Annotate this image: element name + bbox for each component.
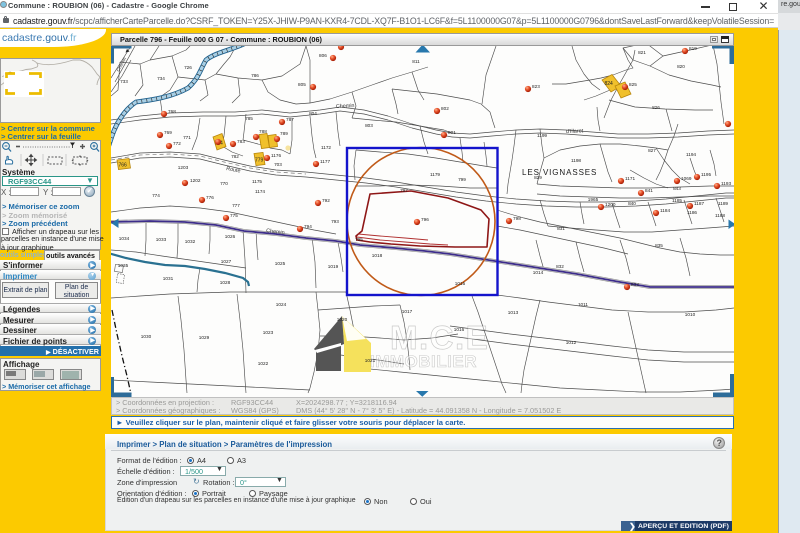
svg-text:1198: 1198 <box>571 158 581 163</box>
svg-text:820: 820 <box>677 64 685 69</box>
svg-text:1032: 1032 <box>185 239 196 244</box>
svg-text:1013: 1013 <box>508 310 519 315</box>
svg-text:1187: 1187 <box>694 201 704 206</box>
svg-text:1172: 1172 <box>321 145 331 150</box>
svg-text:783: 783 <box>237 139 245 144</box>
svg-text:1016: 1016 <box>454 327 465 332</box>
svg-text:1020: 1020 <box>337 317 348 322</box>
svg-text:1179: 1179 <box>430 172 440 177</box>
svg-text:782: 782 <box>231 154 239 159</box>
svg-text:843: 843 <box>673 186 681 191</box>
svg-text:M.C.E: M.C.E <box>390 319 489 356</box>
svg-text:1069: 1069 <box>681 176 692 181</box>
svg-text:703: 703 <box>274 162 282 167</box>
svg-text:831: 831 <box>557 226 565 231</box>
svg-text:LES VIGNASSES: LES VIGNASSES <box>522 168 597 177</box>
svg-text:1194: 1194 <box>686 152 696 157</box>
svg-text:826: 826 <box>652 105 660 110</box>
svg-text:786: 786 <box>251 73 259 78</box>
svg-text:794: 794 <box>304 224 312 229</box>
svg-text:1202: 1202 <box>190 178 201 183</box>
svg-text:819: 819 <box>689 46 697 51</box>
svg-text:1030: 1030 <box>141 334 152 339</box>
svg-text:1199: 1199 <box>537 133 547 138</box>
svg-text:1171: 1171 <box>625 176 635 181</box>
svg-text:1019: 1019 <box>328 264 339 269</box>
svg-text:797: 797 <box>400 188 408 193</box>
svg-text:1017: 1017 <box>402 309 413 314</box>
svg-text:775: 775 <box>230 213 238 218</box>
svg-text:787: 787 <box>286 117 294 122</box>
svg-text:785: 785 <box>245 116 253 121</box>
svg-text:1022: 1022 <box>258 361 269 366</box>
svg-text:798: 798 <box>513 216 521 221</box>
svg-text:1029: 1029 <box>199 335 210 340</box>
svg-text:1023: 1023 <box>263 330 274 335</box>
svg-text:1195: 1195 <box>701 172 711 177</box>
svg-text:806: 806 <box>319 53 327 58</box>
svg-text:1186: 1186 <box>687 210 697 215</box>
svg-text:776: 776 <box>206 195 214 200</box>
svg-text:821: 821 <box>638 50 646 55</box>
svg-text:1021: 1021 <box>365 358 376 363</box>
svg-text:774: 774 <box>152 193 160 198</box>
svg-text:771: 771 <box>183 135 191 140</box>
svg-text:1014: 1014 <box>533 270 544 275</box>
svg-text:772: 772 <box>173 141 181 146</box>
svg-text:788: 788 <box>259 129 267 134</box>
svg-text:1028: 1028 <box>220 280 231 285</box>
svg-text:1024: 1024 <box>276 302 287 307</box>
svg-text:1965: 1965 <box>588 197 599 202</box>
svg-text:824: 824 <box>605 81 614 87</box>
svg-text:825: 825 <box>629 82 637 87</box>
svg-text:1175: 1175 <box>252 179 262 184</box>
svg-text:1174: 1174 <box>255 189 265 194</box>
svg-text:805: 805 <box>298 82 306 87</box>
svg-text:827: 827 <box>648 148 656 153</box>
svg-text:769: 769 <box>164 130 172 135</box>
svg-text:840: 840 <box>628 201 636 206</box>
svg-text:832: 832 <box>556 264 564 269</box>
svg-text:1012: 1012 <box>566 340 577 345</box>
svg-text:d'Illaret: d'Illaret <box>566 128 584 135</box>
svg-text:1027: 1027 <box>221 259 232 264</box>
svg-text:1033: 1033 <box>156 237 167 242</box>
svg-text:1188: 1188 <box>715 213 725 218</box>
svg-text:766: 766 <box>119 163 128 169</box>
svg-text:795: 795 <box>355 237 363 242</box>
svg-text:1203: 1203 <box>178 165 189 170</box>
svg-text:823: 823 <box>532 84 540 89</box>
svg-text:802: 802 <box>441 106 449 111</box>
svg-text:Chemin: Chemin <box>336 103 355 110</box>
svg-text:1018: 1018 <box>372 253 383 258</box>
svg-text:1176: 1176 <box>271 153 281 158</box>
svg-text:726: 726 <box>184 65 192 70</box>
svg-text:1193: 1193 <box>721 181 731 186</box>
svg-text:1185: 1185 <box>672 198 682 203</box>
svg-text:801: 801 <box>448 130 456 135</box>
svg-text:1200: 1200 <box>605 202 616 207</box>
svg-text:1025: 1025 <box>275 261 286 266</box>
svg-text:811: 811 <box>412 59 420 64</box>
svg-text:803: 803 <box>365 123 373 128</box>
svg-text:779: 779 <box>255 158 264 164</box>
svg-text:789: 789 <box>280 131 288 136</box>
svg-text:804: 804 <box>309 111 317 116</box>
svg-text:796: 796 <box>421 217 429 222</box>
svg-text:792: 792 <box>322 198 330 203</box>
svg-text:1026: 1026 <box>225 234 236 239</box>
svg-text:1015: 1015 <box>455 281 466 286</box>
svg-text:1031: 1031 <box>163 276 174 281</box>
svg-text:1010: 1010 <box>685 312 696 317</box>
svg-text:799: 799 <box>458 177 466 182</box>
svg-text:IMMOBILIER: IMMOBILIER <box>370 352 477 371</box>
svg-text:1189: 1189 <box>718 201 728 206</box>
svg-text:733: 733 <box>120 79 128 84</box>
svg-text:734: 734 <box>157 76 165 81</box>
svg-text:1184: 1184 <box>660 208 670 213</box>
svg-text:841: 841 <box>645 188 653 193</box>
svg-text:793: 793 <box>331 219 339 224</box>
svg-text:1177: 1177 <box>320 159 330 164</box>
svg-text:833: 833 <box>631 282 639 287</box>
svg-text:835: 835 <box>655 243 663 248</box>
svg-text:770: 770 <box>220 181 228 186</box>
svg-text:768: 768 <box>168 109 176 114</box>
svg-text:1034: 1034 <box>119 236 130 241</box>
svg-text:777: 777 <box>232 203 240 208</box>
svg-text:1035: 1035 <box>118 263 129 268</box>
svg-text:1011: 1011 <box>578 302 588 307</box>
